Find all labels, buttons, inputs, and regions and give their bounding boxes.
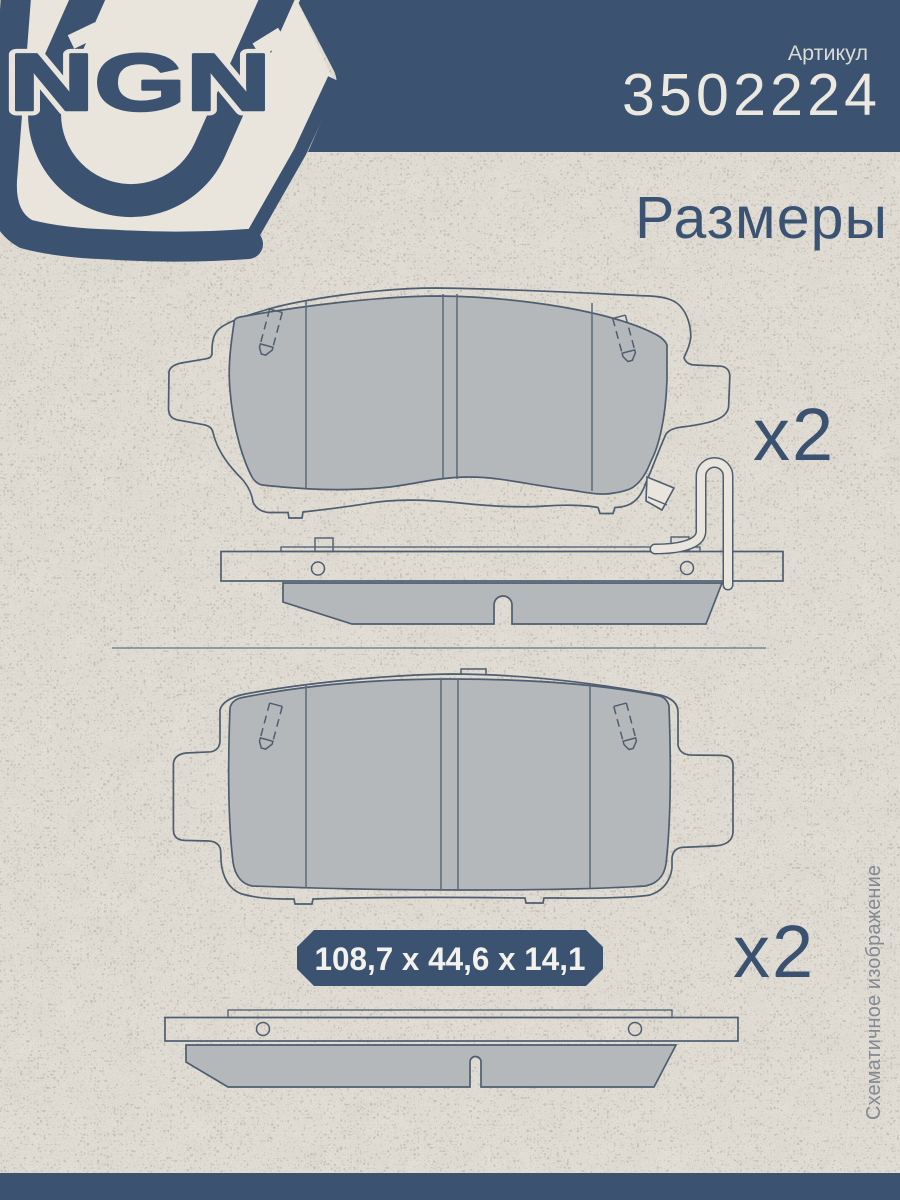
svg-text:NGN: NGN (9, 38, 271, 128)
svg-text:108,7 x 44,6 x 14,1: 108,7 x 44,6 x 14,1 (315, 941, 586, 977)
svg-text:3502224: 3502224 (622, 62, 877, 128)
svg-text:x2: x2 (753, 393, 835, 476)
svg-text:x2: x2 (733, 910, 815, 993)
svg-text:Размеры: Размеры (635, 185, 887, 251)
svg-text:Схематичное изображение: Схематичное изображение (863, 865, 885, 1120)
